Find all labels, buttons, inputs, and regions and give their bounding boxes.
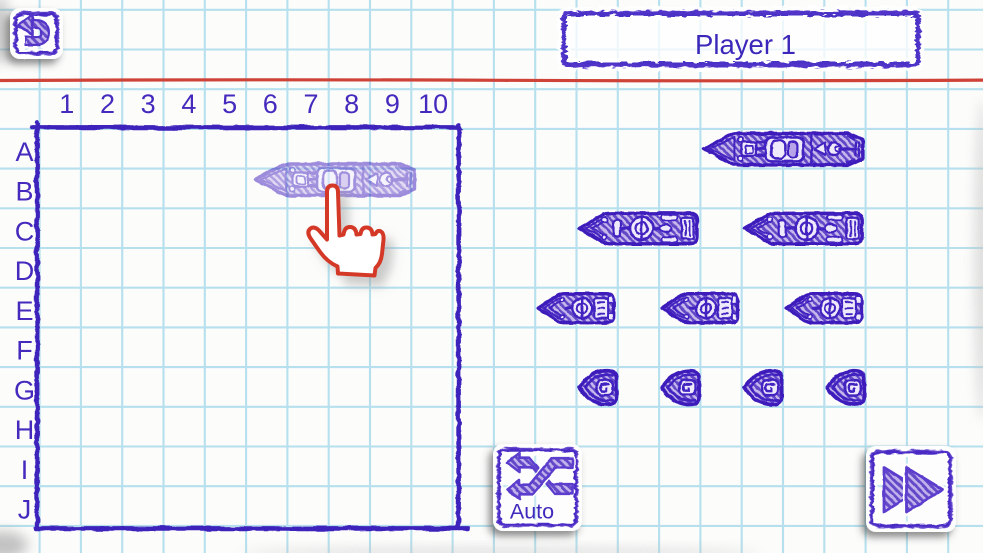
svg-text:2: 2 — [100, 89, 115, 119]
svg-text:A: A — [15, 137, 33, 167]
svg-text:F: F — [16, 336, 33, 366]
svg-text:1: 1 — [59, 89, 74, 119]
svg-text:H: H — [15, 415, 35, 445]
svg-text:D: D — [15, 256, 35, 286]
svg-text:B: B — [15, 177, 33, 207]
svg-text:J: J — [18, 495, 32, 525]
svg-text:8: 8 — [344, 89, 359, 119]
svg-text:G: G — [14, 375, 35, 405]
svg-text:E: E — [15, 296, 33, 326]
svg-text:9: 9 — [385, 89, 400, 119]
svg-text:6: 6 — [263, 89, 278, 119]
svg-text:I: I — [21, 455, 29, 485]
svg-text:Player 1: Player 1 — [695, 29, 796, 60]
svg-text:C: C — [15, 216, 35, 246]
svg-text:10: 10 — [418, 89, 448, 119]
svg-text:Auto: Auto — [510, 500, 554, 524]
svg-text:5: 5 — [222, 89, 237, 119]
svg-text:3: 3 — [141, 89, 156, 119]
svg-text:4: 4 — [181, 89, 196, 119]
svg-text:7: 7 — [303, 89, 318, 119]
